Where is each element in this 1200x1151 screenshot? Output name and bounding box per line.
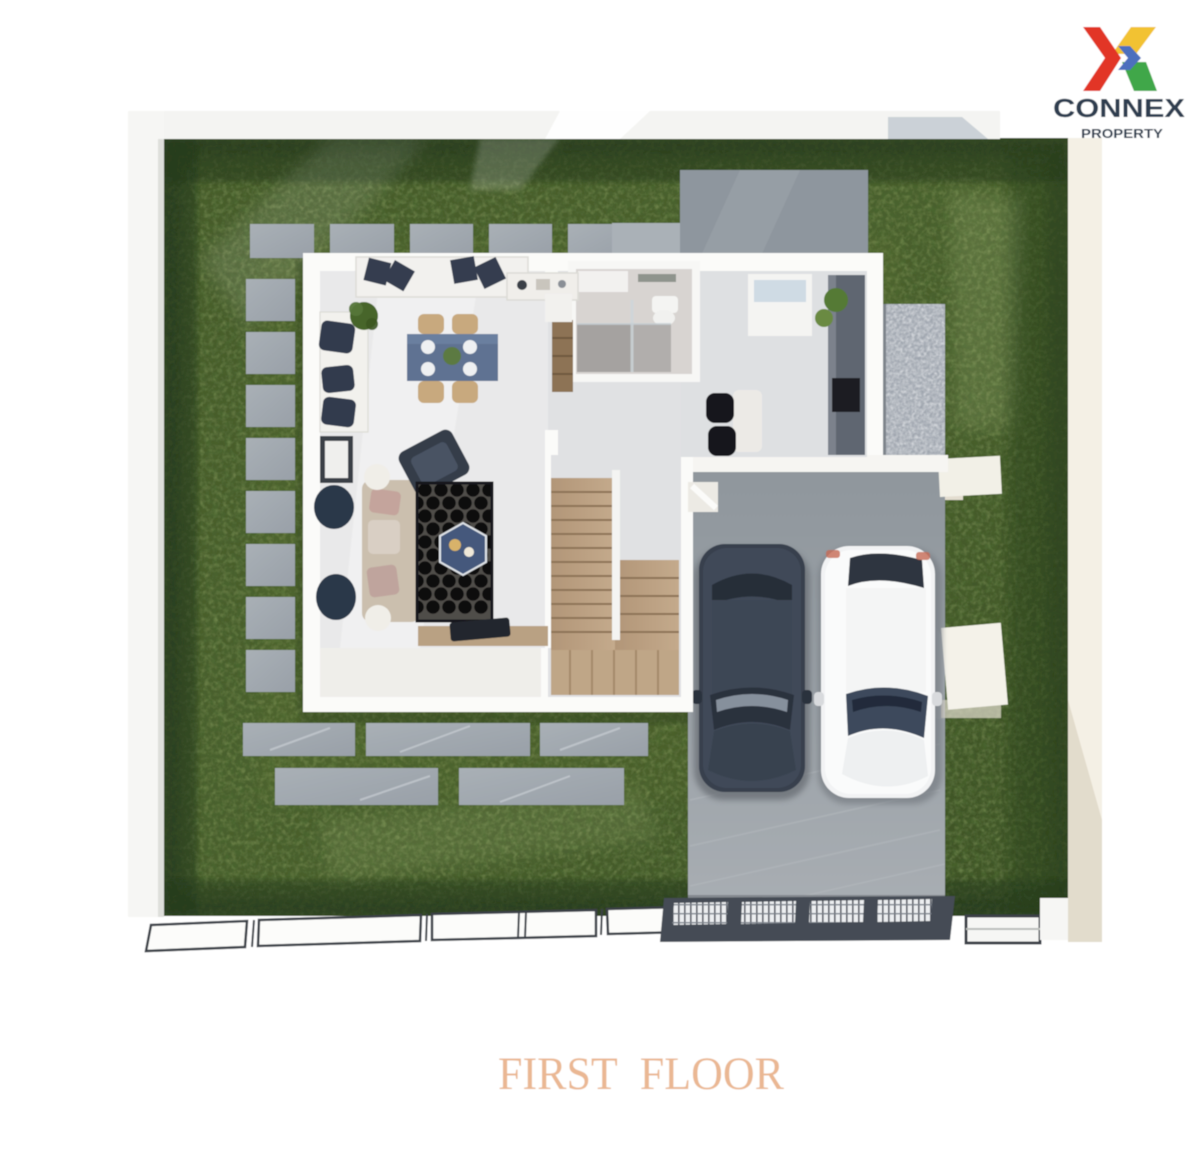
svg-text:FIRST FLOOR: FIRST FLOOR — [498, 1048, 785, 1100]
svg-text:CONNEX: CONNEX — [1053, 93, 1186, 123]
svg-text:PROPERTY: PROPERTY — [1081, 126, 1163, 141]
